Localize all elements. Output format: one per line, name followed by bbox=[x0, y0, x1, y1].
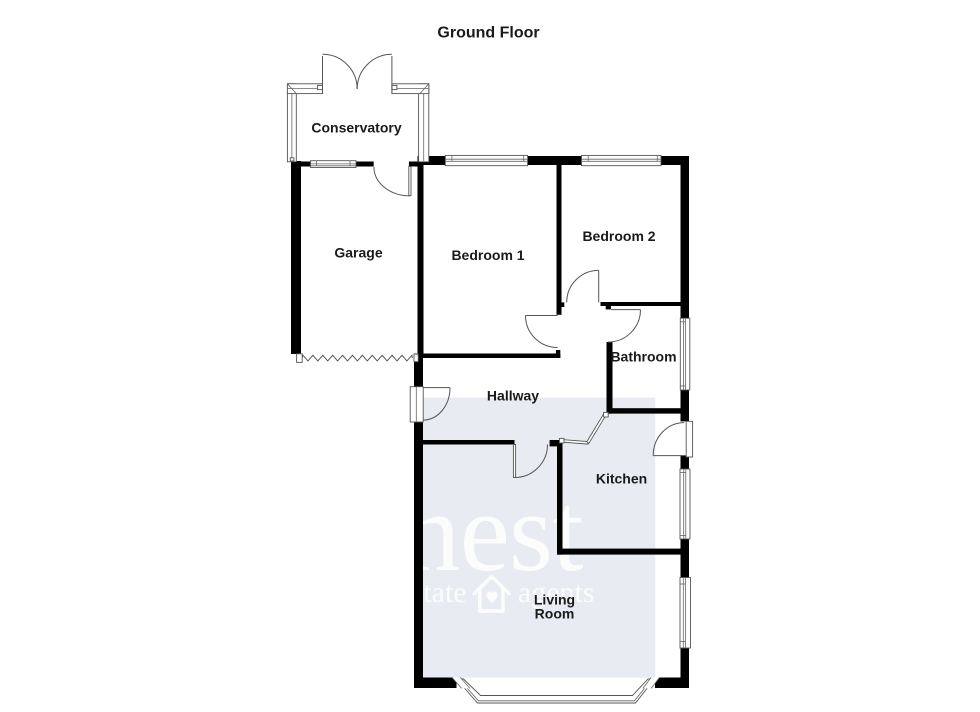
svg-text:Hallway: Hallway bbox=[487, 388, 539, 404]
svg-text:Bathroom: Bathroom bbox=[610, 349, 676, 365]
svg-text:Bedroom 2: Bedroom 2 bbox=[582, 228, 655, 244]
svg-text:Room: Room bbox=[535, 606, 575, 622]
svg-text:Ground Floor: Ground Floor bbox=[437, 25, 539, 42]
svg-text:Garage: Garage bbox=[334, 245, 382, 261]
svg-text:Conservatory: Conservatory bbox=[311, 120, 401, 136]
svg-text:Bedroom 1: Bedroom 1 bbox=[451, 247, 524, 263]
svg-text:Kitchen: Kitchen bbox=[596, 471, 647, 487]
